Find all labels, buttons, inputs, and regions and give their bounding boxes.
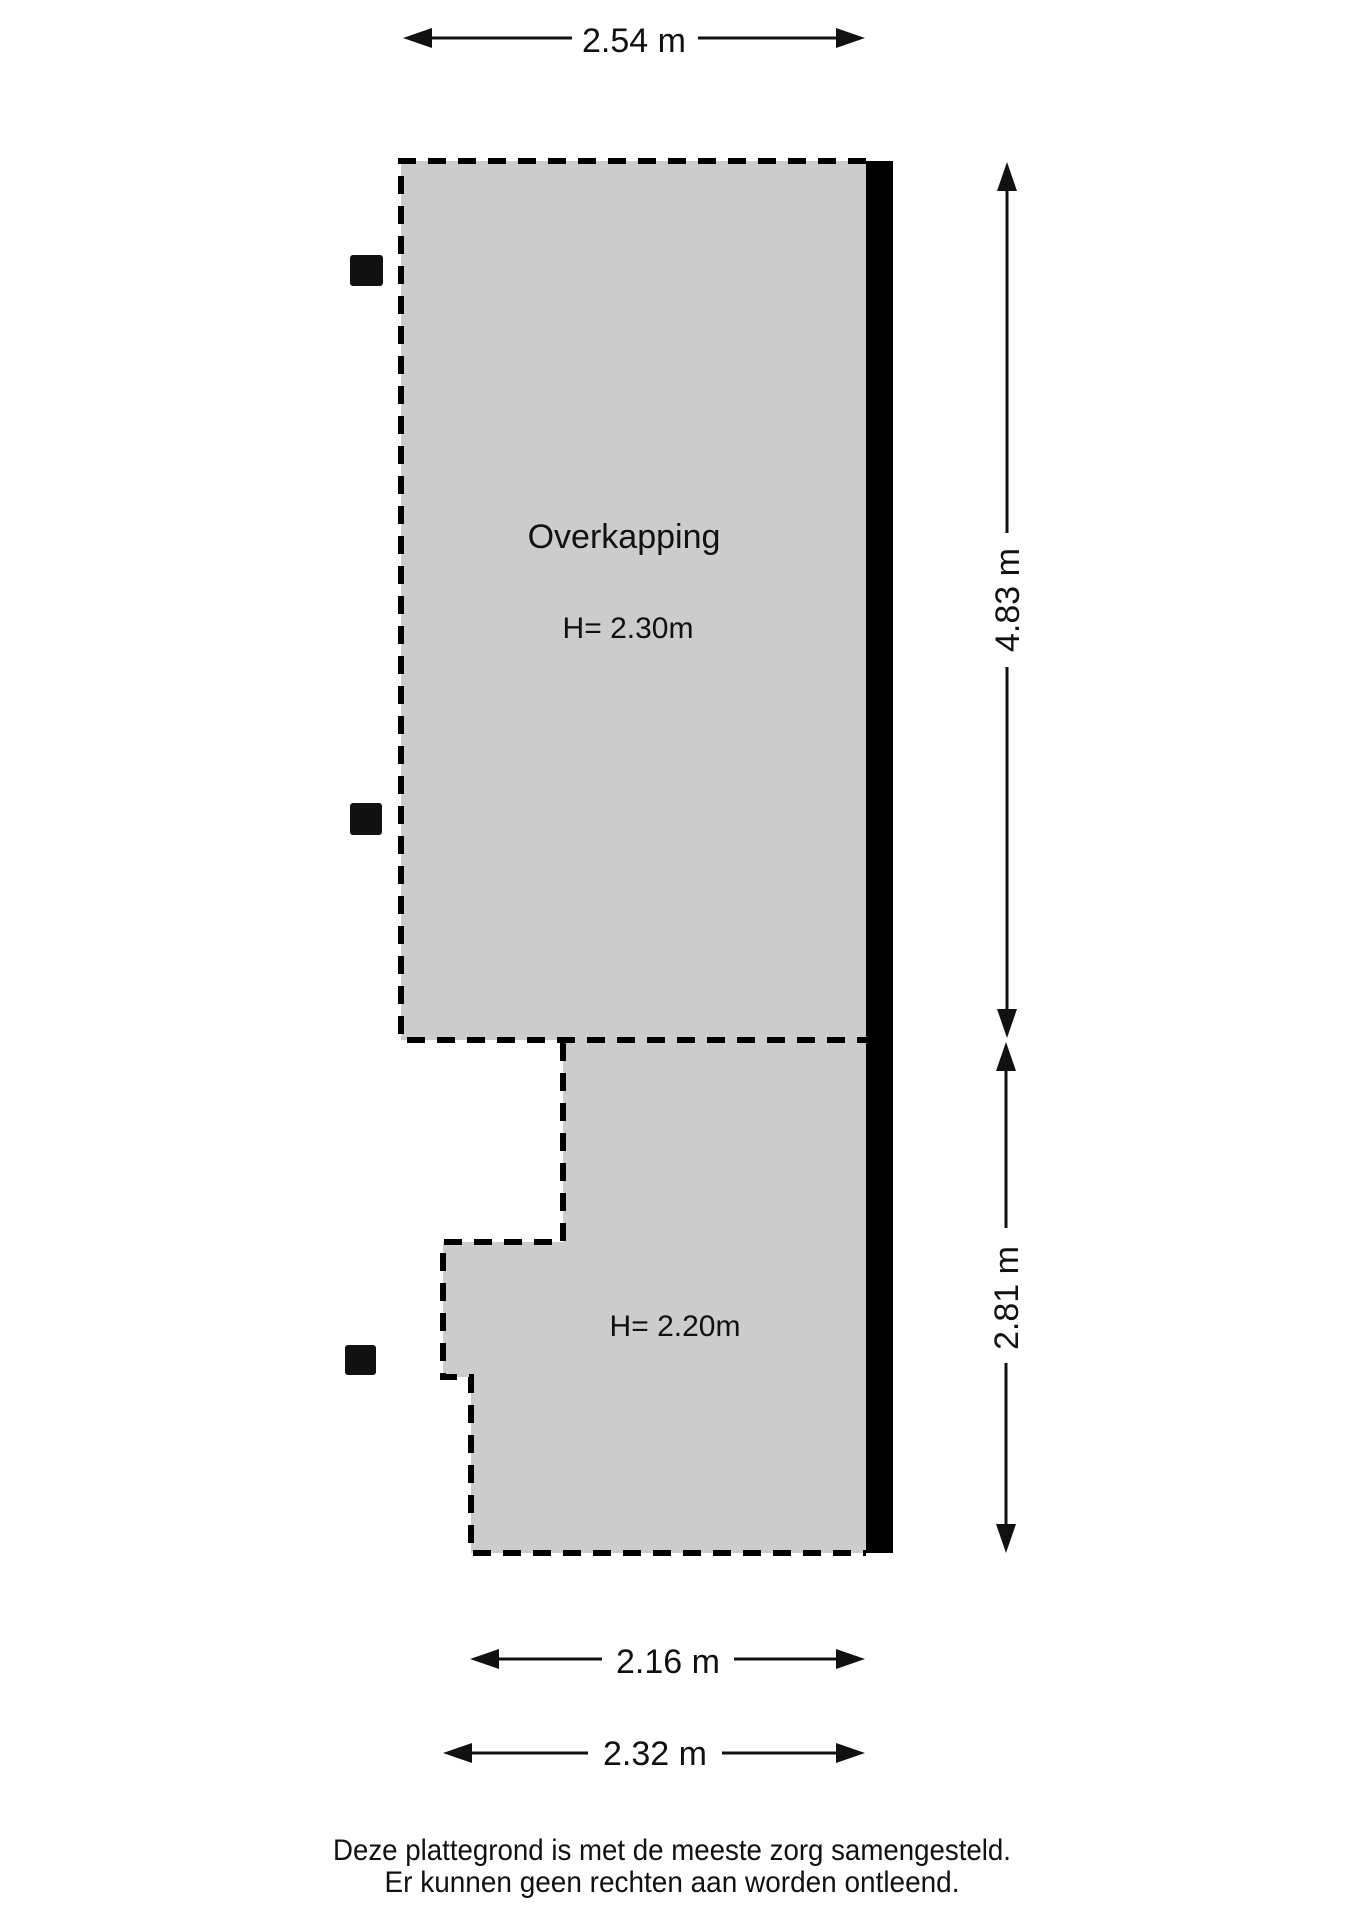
arrow-down-icon (997, 1009, 1017, 1038)
pillar-bottom (345, 1345, 376, 1375)
wall-right (866, 161, 893, 1553)
room-overkapping-bottom (443, 1040, 866, 1553)
arrow-up-icon (996, 1042, 1016, 1071)
dimension-right-top-height: 4.83 m (989, 162, 1027, 1038)
footer-disclaimer: Deze plattegrond is met de meeste zorg s… (333, 1834, 1011, 1899)
dimension-right-bottom-height: 2.81 m (988, 1042, 1026, 1553)
arrow-right-icon (836, 1649, 865, 1669)
dimension-bottom-inner-width: 2.16 m (470, 1643, 865, 1681)
room-top-height-label: H= 2.30m (563, 612, 694, 645)
pillar-top (350, 255, 383, 286)
room-bottom-height-label: H= 2.20m (610, 1310, 741, 1343)
floorplan-page: Overkapping H= 2.30m H= 2.20m 2.54 m 4.8… (0, 0, 1358, 1920)
dimension-top-width: 2.54 m (403, 22, 865, 60)
dimension-right-bottom-label: 2.81 m (988, 1246, 1026, 1350)
room-name-label: Overkapping (528, 518, 721, 556)
dimension-bottom-inner-label: 2.16 m (616, 1643, 720, 1681)
arrow-down-icon (996, 1524, 1016, 1553)
dimension-right-top-label: 4.83 m (989, 548, 1027, 652)
arrow-right-icon (836, 1743, 865, 1763)
room-overkapping-top (401, 161, 866, 1040)
arrow-right-icon (836, 28, 865, 48)
arrow-left-icon (403, 28, 432, 48)
disclaimer-line-2: Er kunnen geen rechten aan worden ontlee… (385, 1866, 960, 1899)
pillar-middle (350, 803, 382, 835)
dimension-top-width-label: 2.54 m (582, 22, 686, 60)
arrow-left-icon (470, 1649, 499, 1669)
dimension-bottom-outer-label: 2.32 m (603, 1735, 707, 1773)
arrow-up-icon (997, 162, 1017, 191)
dimension-bottom-outer-width: 2.32 m (443, 1735, 865, 1773)
arrow-left-icon (443, 1743, 472, 1763)
disclaimer-line-1: Deze plattegrond is met de meeste zorg s… (333, 1834, 1011, 1867)
floorplan-canvas: Overkapping H= 2.30m H= 2.20m 2.54 m 4.8… (0, 0, 1358, 1920)
